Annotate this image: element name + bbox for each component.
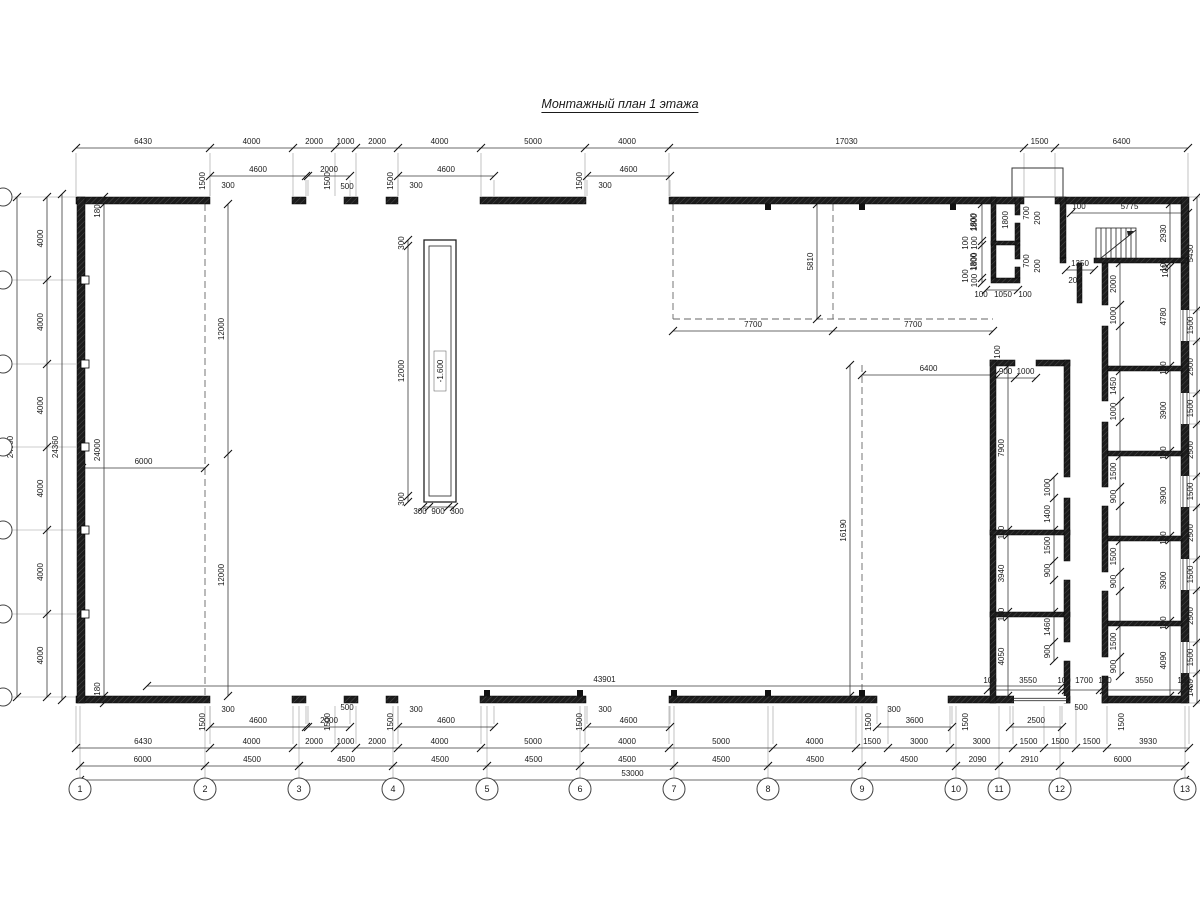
svg-text:900: 900: [1043, 563, 1052, 577]
svg-text:300: 300: [598, 181, 612, 190]
svg-text:4500: 4500: [243, 755, 261, 764]
svg-text:3900: 3900: [1159, 486, 1168, 504]
svg-text:2000: 2000: [368, 737, 386, 746]
svg-text:5775: 5775: [1121, 202, 1139, 211]
svg-text:4000: 4000: [36, 396, 45, 414]
svg-text:4600: 4600: [620, 716, 638, 725]
svg-text:1700: 1700: [1075, 676, 1093, 685]
svg-text:24360: 24360: [51, 435, 60, 458]
floor-plan-drawing: -1.6006430400020001000200040005000400017…: [0, 0, 1200, 900]
svg-text:900: 900: [1043, 644, 1052, 658]
svg-text:100: 100: [1159, 446, 1168, 460]
svg-text:16190: 16190: [839, 519, 848, 542]
svg-text:1500: 1500: [1083, 737, 1101, 746]
svg-text:1800: 1800: [1001, 211, 1010, 229]
svg-text:900: 900: [1109, 659, 1118, 673]
svg-text:700: 700: [1022, 206, 1031, 220]
svg-text:500: 500: [340, 703, 354, 712]
svg-text:1800: 1800: [969, 253, 978, 271]
svg-text:100: 100: [997, 525, 1006, 539]
svg-text:9: 9: [859, 784, 864, 794]
svg-text:3600: 3600: [906, 716, 924, 725]
svg-text:5000: 5000: [524, 737, 542, 746]
svg-text:4000: 4000: [431, 737, 449, 746]
svg-text:1500: 1500: [575, 713, 584, 731]
svg-text:100: 100: [1161, 264, 1170, 278]
svg-text:1500: 1500: [864, 713, 873, 731]
svg-text:4000: 4000: [431, 137, 449, 146]
svg-text:2090: 2090: [969, 755, 987, 764]
svg-text:1500: 1500: [386, 713, 395, 731]
svg-text:4000: 4000: [36, 479, 45, 497]
svg-text:1500: 1500: [1186, 399, 1195, 417]
svg-text:1500: 1500: [1117, 713, 1126, 731]
svg-text:2500: 2500: [1186, 358, 1195, 376]
svg-text:11: 11: [994, 784, 1003, 794]
svg-text:1500: 1500: [863, 737, 881, 746]
pit-trench: -1.600: [424, 240, 456, 502]
svg-text:12: 12: [1055, 784, 1065, 794]
svg-text:1500: 1500: [1109, 632, 1118, 650]
svg-text:6430: 6430: [134, 137, 152, 146]
svg-text:12000: 12000: [397, 359, 406, 382]
svg-text:180: 180: [93, 682, 102, 696]
svg-text:1450: 1450: [1109, 377, 1118, 395]
svg-text:3550: 3550: [1019, 676, 1037, 685]
svg-text:1000: 1000: [1109, 306, 1118, 324]
svg-text:100: 100: [1072, 202, 1086, 211]
svg-text:4500: 4500: [900, 755, 918, 764]
svg-text:1050: 1050: [994, 290, 1012, 299]
svg-text:2500: 2500: [1186, 524, 1195, 542]
svg-text:1460: 1460: [1043, 618, 1052, 636]
svg-text:4780: 4780: [1159, 307, 1168, 325]
svg-text:7700: 7700: [904, 320, 922, 329]
svg-text:100: 100: [983, 676, 997, 685]
svg-text:1500: 1500: [323, 172, 332, 190]
svg-text:2000: 2000: [305, 137, 323, 146]
svg-text:2000: 2000: [305, 737, 323, 746]
svg-text:5810: 5810: [806, 252, 815, 270]
svg-text:500: 500: [1074, 703, 1088, 712]
svg-text:900: 900: [1109, 574, 1118, 588]
svg-text:4000: 4000: [36, 229, 45, 247]
svg-text:300: 300: [409, 705, 423, 714]
svg-text:1500: 1500: [198, 172, 207, 190]
svg-text:1500: 1500: [323, 713, 332, 731]
svg-text:100: 100: [974, 290, 988, 299]
svg-text:5000: 5000: [712, 737, 730, 746]
svg-text:4050: 4050: [997, 647, 1006, 665]
svg-text:1350: 1350: [1071, 259, 1089, 268]
svg-text:24000: 24000: [93, 438, 102, 461]
svg-text:8: 8: [765, 784, 770, 794]
svg-text:200: 200: [1068, 276, 1082, 285]
svg-text:3900: 3900: [1159, 571, 1168, 589]
svg-text:2500: 2500: [1027, 716, 1045, 725]
dimension-lines: [13, 144, 1200, 784]
svg-text:3930: 3930: [1139, 737, 1157, 746]
setting-out-dashed-lines: [205, 204, 993, 696]
svg-text:53000: 53000: [621, 769, 644, 778]
svg-text:180: 180: [1177, 676, 1191, 685]
svg-text:1500: 1500: [198, 713, 207, 731]
svg-text:100: 100: [970, 236, 979, 250]
svg-text:4600: 4600: [249, 165, 267, 174]
staircase-icon: [1096, 228, 1136, 262]
svg-text:6400: 6400: [1113, 137, 1131, 146]
svg-text:180: 180: [93, 204, 102, 218]
svg-text:100: 100: [961, 269, 970, 283]
svg-text:100: 100: [1098, 676, 1112, 685]
svg-text:4090: 4090: [1159, 651, 1168, 669]
svg-text:6430: 6430: [134, 737, 152, 746]
svg-text:300: 300: [221, 181, 235, 190]
svg-text:1400: 1400: [1043, 505, 1052, 523]
svg-text:300: 300: [598, 705, 612, 714]
svg-text:300: 300: [221, 705, 235, 714]
svg-text:4500: 4500: [337, 755, 355, 764]
svg-text:300: 300: [450, 507, 464, 516]
svg-text:1000: 1000: [337, 737, 355, 746]
svg-text:100: 100: [1018, 290, 1032, 299]
svg-text:4000: 4000: [618, 737, 636, 746]
svg-text:300: 300: [887, 705, 901, 714]
drawing-title: Монтажный план 1 этажа: [541, 97, 698, 113]
svg-text:4600: 4600: [620, 165, 638, 174]
svg-text:1500: 1500: [1186, 316, 1195, 334]
svg-text:1500: 1500: [1020, 737, 1038, 746]
svg-text:4000: 4000: [36, 563, 45, 581]
svg-text:1500: 1500: [1031, 137, 1049, 146]
svg-text:5430: 5430: [1186, 244, 1195, 262]
svg-text:500: 500: [340, 182, 354, 191]
svg-text:4000: 4000: [243, 737, 261, 746]
svg-text:2910: 2910: [1021, 755, 1039, 764]
floor-plan-canvas: -1.6006430400020001000200040005000400017…: [0, 0, 1200, 900]
svg-text:13: 13: [1180, 784, 1190, 794]
svg-text:4000: 4000: [243, 137, 261, 146]
svg-text:1500: 1500: [1109, 547, 1118, 565]
svg-text:6400: 6400: [920, 364, 938, 373]
svg-text:100: 100: [970, 273, 979, 287]
svg-text:100: 100: [1159, 531, 1168, 545]
svg-text:43901: 43901: [593, 675, 616, 684]
svg-text:4600: 4600: [437, 165, 455, 174]
svg-text:4500: 4500: [618, 755, 636, 764]
svg-text:1000: 1000: [1017, 367, 1035, 376]
svg-text:2500: 2500: [1186, 441, 1195, 459]
svg-text:4: 4: [390, 784, 395, 794]
svg-text:300: 300: [413, 507, 427, 516]
svg-text:3000: 3000: [973, 737, 991, 746]
svg-text:4000: 4000: [36, 646, 45, 664]
svg-text:12000: 12000: [217, 317, 226, 340]
svg-text:6000: 6000: [1114, 755, 1132, 764]
svg-text:5: 5: [484, 784, 489, 794]
svg-text:100: 100: [993, 345, 1002, 359]
svg-text:300: 300: [397, 236, 406, 250]
svg-text:7: 7: [671, 784, 676, 794]
svg-text:4000: 4000: [36, 313, 45, 331]
svg-text:300: 300: [409, 181, 423, 190]
svg-text:3550: 3550: [1135, 676, 1153, 685]
svg-text:1500: 1500: [1186, 565, 1195, 583]
svg-text:200: 200: [1033, 211, 1042, 225]
svg-text:2000: 2000: [1109, 275, 1118, 293]
svg-text:2500: 2500: [1186, 607, 1195, 625]
svg-text:1: 1: [77, 784, 82, 794]
svg-text:900: 900: [999, 367, 1013, 376]
svg-text:-1.600: -1.600: [436, 359, 445, 382]
svg-text:4600: 4600: [249, 716, 267, 725]
svg-text:3: 3: [296, 784, 301, 794]
svg-text:200: 200: [1033, 259, 1042, 273]
svg-text:7900: 7900: [997, 439, 1006, 457]
svg-text:4500: 4500: [525, 755, 543, 764]
svg-text:4000: 4000: [806, 737, 824, 746]
svg-text:7700: 7700: [744, 320, 762, 329]
svg-text:100: 100: [961, 236, 970, 250]
svg-text:4600: 4600: [437, 716, 455, 725]
svg-text:1000: 1000: [337, 137, 355, 146]
walls-layer: [76, 197, 1189, 703]
svg-text:6: 6: [577, 784, 582, 794]
svg-text:3900: 3900: [1159, 401, 1168, 419]
svg-text:4500: 4500: [712, 755, 730, 764]
svg-text:100: 100: [1159, 616, 1168, 630]
svg-text:2930: 2930: [1159, 224, 1168, 242]
svg-text:5000: 5000: [524, 137, 542, 146]
svg-text:1500: 1500: [961, 713, 970, 731]
svg-text:1500: 1500: [1043, 536, 1052, 554]
svg-text:1000: 1000: [1043, 478, 1052, 496]
svg-text:3940: 3940: [997, 564, 1006, 582]
svg-text:100: 100: [1159, 361, 1168, 375]
svg-text:1500: 1500: [1186, 648, 1195, 666]
svg-text:17030: 17030: [835, 137, 858, 146]
svg-text:100: 100: [997, 607, 1006, 621]
svg-text:2: 2: [202, 784, 207, 794]
svg-text:12000: 12000: [217, 563, 226, 586]
svg-text:10: 10: [951, 784, 961, 794]
svg-text:4000: 4000: [618, 137, 636, 146]
svg-text:4500: 4500: [806, 755, 824, 764]
svg-text:1500: 1500: [1109, 462, 1118, 480]
svg-text:2000: 2000: [368, 137, 386, 146]
svg-text:900: 900: [1109, 489, 1118, 503]
svg-text:4500: 4500: [431, 755, 449, 764]
svg-text:1800: 1800: [969, 213, 978, 231]
svg-text:1500: 1500: [575, 172, 584, 190]
svg-text:300: 300: [397, 492, 406, 506]
svg-text:1500: 1500: [1186, 482, 1195, 500]
svg-text:100: 100: [1057, 676, 1071, 685]
svg-text:6000: 6000: [135, 457, 153, 466]
svg-text:3000: 3000: [910, 737, 928, 746]
svg-text:900: 900: [431, 507, 445, 516]
svg-text:1000: 1000: [1109, 402, 1118, 420]
svg-text:700: 700: [1022, 254, 1031, 268]
svg-text:1500: 1500: [386, 172, 395, 190]
svg-text:1500: 1500: [1051, 737, 1069, 746]
svg-text:6000: 6000: [134, 755, 152, 764]
